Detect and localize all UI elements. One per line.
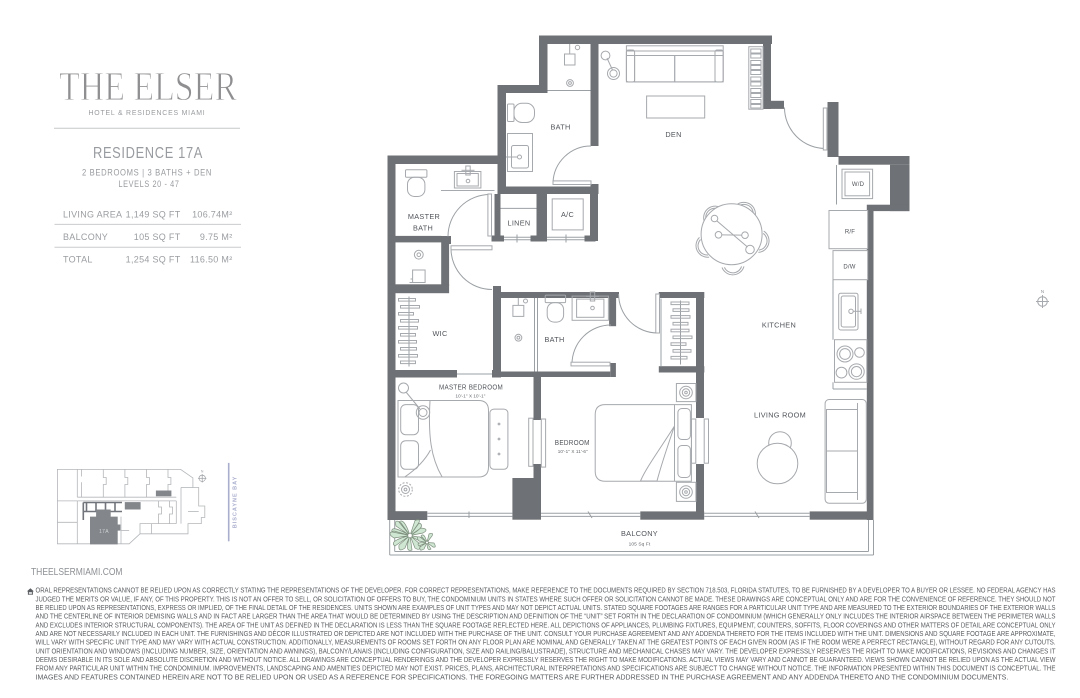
svg-text:JUDGED THE MERITS OR VALUE, IF: JUDGED THE MERITS OR VALUE, IF ANY, OF T… bbox=[36, 596, 1057, 603]
svg-text:2 BEDROOMS | 3 BATHS + DEN: 2 BEDROOMS | 3 BATHS + DEN bbox=[82, 167, 212, 178]
svg-text:N: N bbox=[1041, 289, 1044, 294]
svg-text:HOTEL & RESIDENCES MIAMI: HOTEL & RESIDENCES MIAMI bbox=[89, 110, 206, 117]
svg-text:UNIT ORIENTATION AND WINDOWS (: UNIT ORIENTATION AND WINDOWS (INCLUDING … bbox=[36, 648, 1057, 655]
svg-text:KITCHEN: KITCHEN bbox=[762, 321, 796, 330]
svg-text:DEEMS DESIRABLE IN ITS SOLE AN: DEEMS DESIRABLE IN ITS SOLE AND ABSOLUTE… bbox=[36, 657, 1056, 664]
svg-text:MASTER: MASTER bbox=[408, 212, 440, 221]
svg-text:116.50 M²: 116.50 M² bbox=[190, 255, 233, 265]
svg-text:105 SQ FT: 105 SQ FT bbox=[134, 232, 181, 242]
svg-text:THEELSERMIAMI.COM: THEELSERMIAMI.COM bbox=[31, 566, 123, 578]
svg-text:9.75 M²: 9.75 M² bbox=[200, 232, 233, 242]
svg-text:WIC: WIC bbox=[432, 329, 447, 338]
svg-text:W/D: W/D bbox=[852, 182, 865, 188]
svg-text:LIVING ROOM: LIVING ROOM bbox=[754, 411, 806, 420]
svg-text:AND EXCLUDES INTERIOR STRUCTUR: AND EXCLUDES INTERIOR STRUCTURAL COMPONE… bbox=[36, 622, 1056, 629]
svg-text:BE RELIED UPON AS REPRESENTATI: BE RELIED UPON AS REPRESENTATIONS, EXPRE… bbox=[36, 605, 1056, 612]
svg-text:106.74M²: 106.74M² bbox=[192, 210, 232, 220]
svg-text:AND ARE NOT NECESSARILY INCLUD: AND ARE NOT NECESSARILY INCLUDED IN EACH… bbox=[36, 629, 1056, 638]
svg-text:D/W: D/W bbox=[843, 265, 855, 271]
svg-text:1,149 SQ FT: 1,149 SQ FT bbox=[126, 210, 181, 220]
svg-text:THE ELSER: THE ELSER bbox=[59, 63, 238, 109]
svg-text:BATH: BATH bbox=[544, 335, 564, 344]
svg-text:TOTAL: TOTAL bbox=[63, 255, 93, 265]
svg-text:LEVELS 20 - 47: LEVELS 20 - 47 bbox=[119, 179, 180, 190]
svg-text:FROM ANY PARTICULAR UNIT WITHI: FROM ANY PARTICULAR UNIT WITHIN THE COND… bbox=[36, 666, 1056, 673]
svg-text:10'-1" X 11'-6": 10'-1" X 11'-6" bbox=[558, 449, 588, 455]
svg-text:LINEN: LINEN bbox=[508, 219, 531, 228]
svg-text:BATH: BATH bbox=[413, 224, 433, 233]
svg-text:105 Sq Ft: 105 Sq Ft bbox=[629, 542, 651, 548]
svg-text:R/F: R/F bbox=[845, 230, 855, 236]
svg-text:MASTER BEDROOM: MASTER BEDROOM bbox=[439, 383, 503, 392]
svg-text:BALCONY: BALCONY bbox=[621, 529, 658, 538]
svg-text:ORAL REPRESENTATIONS CANNOT BE: ORAL REPRESENTATIONS CANNOT BE RELIED UP… bbox=[36, 588, 1056, 595]
svg-text:BALCONY: BALCONY bbox=[63, 232, 108, 242]
svg-text:BATH: BATH bbox=[550, 123, 570, 132]
svg-text:17A: 17A bbox=[99, 529, 109, 535]
svg-text:BEDROOM: BEDROOM bbox=[555, 438, 590, 447]
svg-text:10'-1" X 10'-1": 10'-1" X 10'-1" bbox=[456, 394, 486, 400]
svg-text:DEN: DEN bbox=[665, 130, 681, 139]
svg-text:AND THE CENTERLINE OF INTERIOR: AND THE CENTERLINE OF INTERIOR DEMISING … bbox=[36, 614, 1056, 621]
svg-text:BISCAYNE BAY: BISCAYNE BAY bbox=[233, 476, 239, 529]
svg-text:WILL VARY WITH SPECIFIC UNIT T: WILL VARY WITH SPECIFIC UNIT TYPE AND MA… bbox=[36, 640, 1056, 647]
svg-text:IMAGES AND FEATURES CONTAINED: IMAGES AND FEATURES CONTAINED HEREIN ARE… bbox=[36, 674, 1009, 681]
svg-text:RESIDENCE 17A: RESIDENCE 17A bbox=[93, 145, 203, 162]
svg-text:A/C: A/C bbox=[561, 210, 574, 219]
svg-text:1,254 SQ FT: 1,254 SQ FT bbox=[126, 255, 181, 265]
svg-text:LIVING AREA: LIVING AREA bbox=[63, 210, 122, 220]
